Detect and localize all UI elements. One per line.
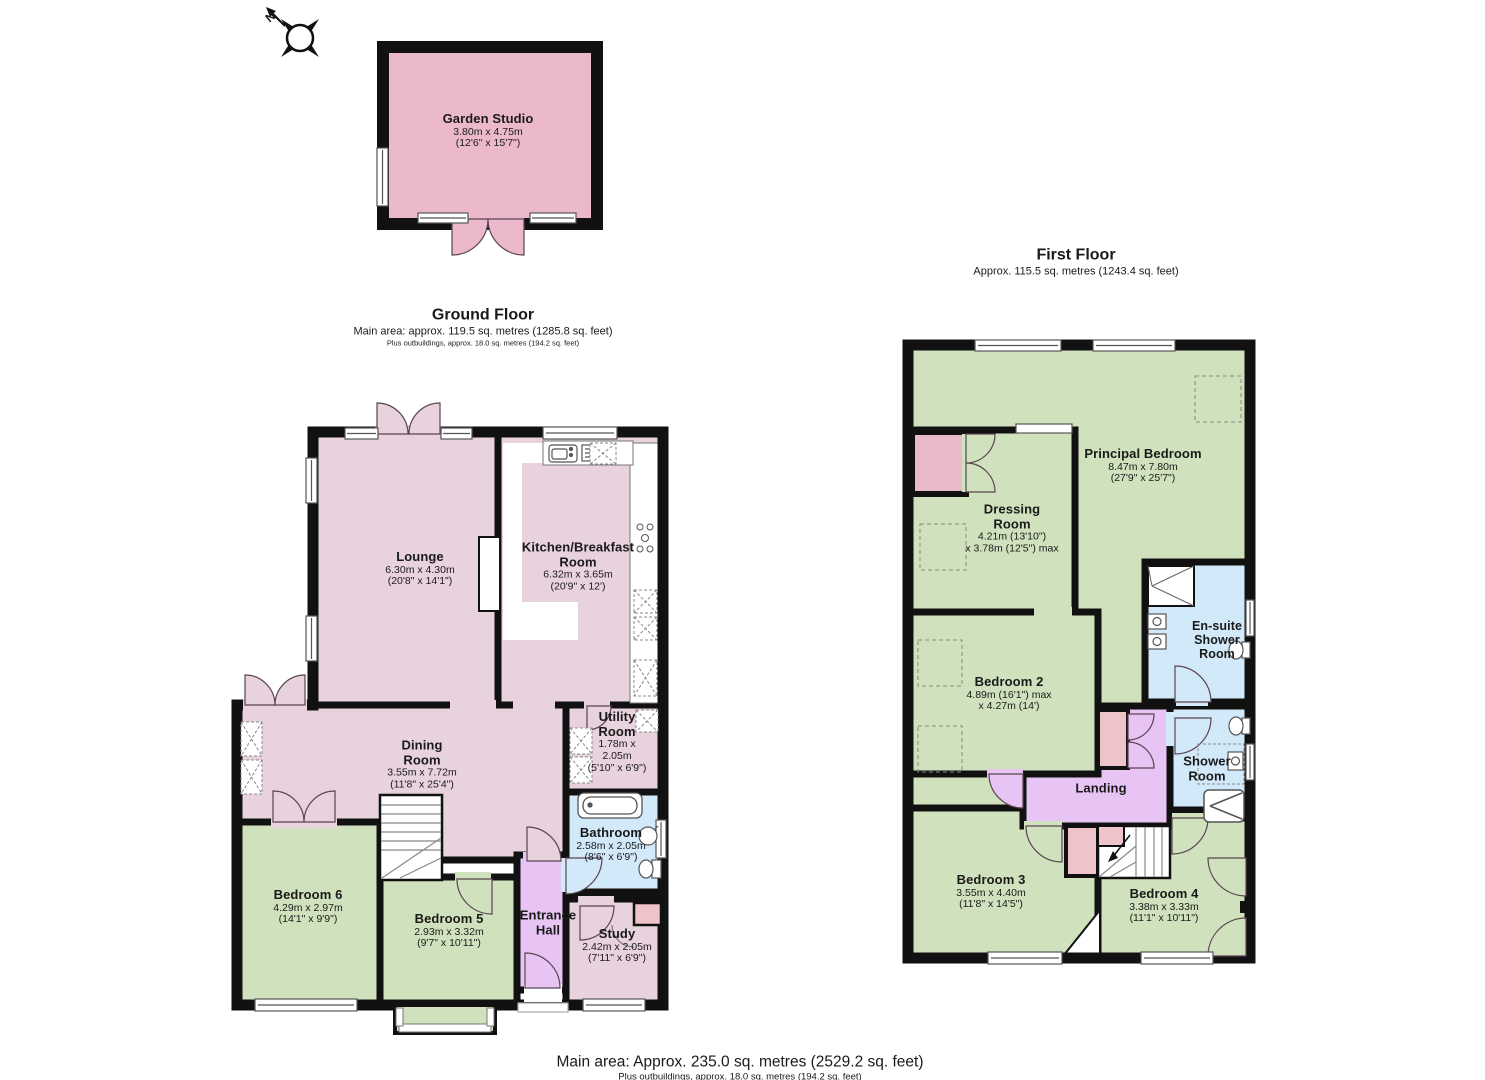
garden-double-door-icon <box>452 219 524 255</box>
room-label-landing: Landing <box>1056 782 1146 797</box>
stair-cupboard <box>1066 826 1098 876</box>
showerroom-toilet-icon <box>1229 717 1250 735</box>
room-label-bedroom4: Bedroom 4 3.38m x 3.33m (11'1" x 10'11") <box>1094 887 1234 925</box>
floorplan-drawing <box>0 0 1485 1080</box>
bedroom5-bay-window <box>395 1005 495 1033</box>
footer-area: Main area: Approx. 235.0 sq. metres (252… <box>556 1054 923 1080</box>
room-label-principal-bedroom: Principal Bedroom 8.47m x 7.80m (27'9" x… <box>1058 447 1228 485</box>
internal-window <box>1016 424 1072 433</box>
front-step <box>518 1003 568 1012</box>
bath-icon <box>578 793 642 818</box>
room-label-shower-room: Shower Room <box>1175 754 1239 783</box>
ground-floor-title: Ground Floor Main area: approx. 119.5 sq… <box>353 307 612 348</box>
room-label-bathroom: Bathroom 2.58m x 2.05m (8'6" x 6'9") <box>556 826 666 864</box>
room-label-kitchen: Kitchen/Breakfast Room 6.32m x 3.65m (20… <box>518 541 638 594</box>
floorplan-page: N Ground Floor Main area: approx. 119.5 … <box>0 0 1485 1080</box>
room-label-dining: Dining Room 3.55m x 7.72m (11'8" x 25'4"… <box>382 739 462 792</box>
room-label-utility: Utility Room 1.78m x 2.05m (5'10" x 6'9"… <box>584 710 650 774</box>
room-label-bedroom6: Bedroom 6 4.29m x 2.97m (14'1" x 9'9") <box>243 888 373 926</box>
bedroom4-door-stub <box>1240 901 1252 913</box>
dressing-closet <box>912 432 966 494</box>
first-floor-title: First Floor Approx. 115.5 sq. metres (12… <box>973 247 1178 278</box>
room-label-dressing-room: Dressing Room 4.21m (13'10") x 3.78m (12… <box>942 503 1082 556</box>
first-stairs <box>1098 826 1170 878</box>
study-cupboard <box>634 903 661 925</box>
kitchen-sink-icon <box>549 445 577 462</box>
ground-stairs <box>380 795 442 880</box>
showerroom-tray-icon <box>1204 790 1244 822</box>
landing-cupboard <box>1098 710 1128 768</box>
room-label-ensuite: En-suite Shower Room <box>1182 619 1252 661</box>
room-label-garden-studio: Garden Studio 3.80m x 4.75m (12'6" x 15'… <box>438 112 538 150</box>
garden-studio-plan <box>377 47 597 255</box>
room-label-study: Study 2.42m x 2.05m (7'11" x 6'9") <box>562 927 672 965</box>
room-label-bedroom3: Bedroom 3 3.55m x 4.40m (11'8" x 14'5") <box>926 873 1056 911</box>
room-label-lounge: Lounge 6.30m x 4.30m (20'8" x 14'1") <box>350 550 490 588</box>
ensuite-shower-icon <box>1148 566 1194 606</box>
room-label-bedroom2: Bedroom 2 4.89m (16'1") max x 4.27m (14'… <box>939 675 1079 713</box>
room-label-bedroom5: Bedroom 5 2.93m x 3.32m (9'7" x 10'11") <box>384 912 514 950</box>
